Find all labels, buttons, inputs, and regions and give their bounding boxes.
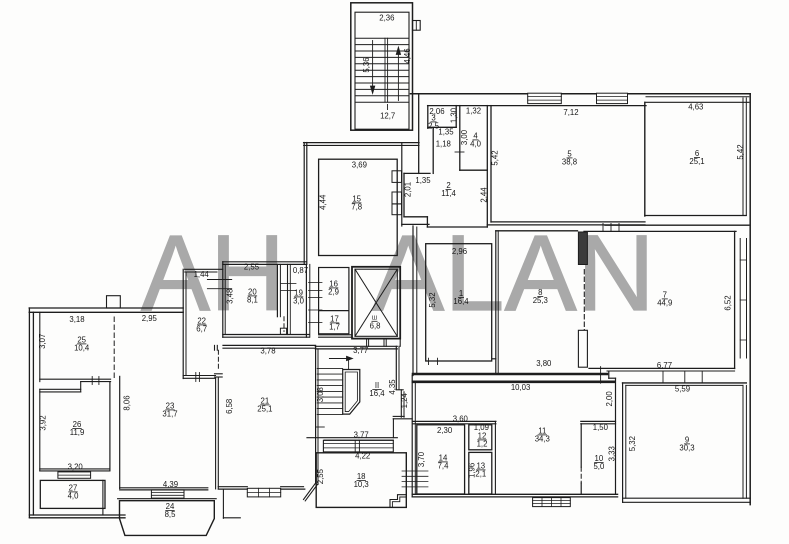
svg-text:5,36: 5,36 xyxy=(362,57,371,72)
svg-text:5,32: 5,32 xyxy=(428,292,437,307)
svg-text:3,70: 3,70 xyxy=(417,451,426,467)
svg-text:5,42: 5,42 xyxy=(490,150,499,165)
svg-text:4,39: 4,39 xyxy=(163,480,178,489)
svg-text:4,35: 4,35 xyxy=(388,379,397,395)
svg-text:25,1: 25,1 xyxy=(689,157,704,166)
svg-text:1,18: 1,18 xyxy=(436,139,451,148)
svg-text:4,0: 4,0 xyxy=(470,139,482,148)
svg-text:16,4: 16,4 xyxy=(453,297,469,306)
svg-text:2,55: 2,55 xyxy=(316,468,325,484)
svg-text:34,3: 34,3 xyxy=(535,434,550,443)
svg-text:1,44: 1,44 xyxy=(194,270,210,279)
svg-text:0,87: 0,87 xyxy=(293,266,308,275)
svg-text:4,63: 4,63 xyxy=(688,102,703,111)
svg-text:2,00: 2,00 xyxy=(605,391,614,407)
svg-text:8,5: 8,5 xyxy=(165,510,177,519)
svg-text:10,4: 10,4 xyxy=(74,343,90,352)
svg-text:4,44: 4,44 xyxy=(319,194,328,210)
svg-text:2,44: 2,44 xyxy=(479,187,488,203)
svg-text:6,52: 6,52 xyxy=(723,295,732,310)
svg-text:3,60: 3,60 xyxy=(453,414,469,423)
svg-text:7,12: 7,12 xyxy=(563,108,578,117)
svg-text:3,07: 3,07 xyxy=(38,334,47,349)
svg-text:6,77: 6,77 xyxy=(657,361,672,370)
svg-text:10,03: 10,03 xyxy=(511,383,531,392)
svg-text:5,59: 5,59 xyxy=(675,384,690,393)
svg-text:3,77: 3,77 xyxy=(353,346,368,355)
svg-text:1,7: 1,7 xyxy=(329,322,340,331)
svg-text:1,09: 1,09 xyxy=(474,423,489,432)
svg-text:25,3: 25,3 xyxy=(533,296,548,305)
svg-text:1,30: 1,30 xyxy=(449,107,458,123)
svg-text:ALAN: ALAN xyxy=(372,212,655,333)
svg-text:3,80: 3,80 xyxy=(536,359,552,368)
svg-text:10,3: 10,3 xyxy=(354,480,369,489)
svg-text:25,1: 25,1 xyxy=(257,404,272,413)
svg-text:44,9: 44,9 xyxy=(657,298,672,307)
svg-text:3,08: 3,08 xyxy=(316,387,325,402)
svg-text:7,4: 7,4 xyxy=(438,461,450,470)
svg-text:5,0: 5,0 xyxy=(593,462,605,471)
svg-text:8,1: 8,1 xyxy=(247,295,258,304)
svg-text:2,30: 2,30 xyxy=(437,426,453,435)
svg-text:4,0: 4,0 xyxy=(68,491,80,500)
svg-text:1,96: 1,96 xyxy=(468,463,477,478)
svg-text:3,48: 3,48 xyxy=(225,289,234,304)
svg-text:3,0: 3,0 xyxy=(293,296,305,305)
svg-text:3,00: 3,00 xyxy=(460,129,469,145)
svg-text:3,77: 3,77 xyxy=(354,430,369,439)
svg-text:1,35: 1,35 xyxy=(438,127,454,136)
svg-text:38,8: 38,8 xyxy=(562,157,577,166)
svg-text:31,7: 31,7 xyxy=(162,409,177,418)
svg-text:3,33: 3,33 xyxy=(607,446,616,461)
svg-text:3,69: 3,69 xyxy=(352,160,367,169)
svg-text:2,1: 2,1 xyxy=(475,469,486,478)
svg-text:3,20: 3,20 xyxy=(68,462,84,471)
svg-text:5,42: 5,42 xyxy=(736,144,745,159)
svg-text:2,9: 2,9 xyxy=(328,287,339,296)
svg-text:30,3: 30,3 xyxy=(679,443,694,452)
svg-text:6,7: 6,7 xyxy=(196,324,207,333)
svg-text:3,78: 3,78 xyxy=(260,347,275,356)
svg-text:6,8: 6,8 xyxy=(370,321,381,330)
svg-text:8,06: 8,06 xyxy=(123,395,132,410)
svg-text:1,32: 1,32 xyxy=(466,106,481,115)
svg-text:1,35: 1,35 xyxy=(415,176,431,185)
svg-text:12,7: 12,7 xyxy=(380,111,395,120)
svg-text:4,46: 4,46 xyxy=(403,48,412,63)
svg-text:2,01: 2,01 xyxy=(404,182,413,197)
svg-text:16,4: 16,4 xyxy=(369,389,385,398)
svg-text:6,58: 6,58 xyxy=(225,399,234,414)
svg-text:1,2: 1,2 xyxy=(477,439,488,448)
svg-text:11,4: 11,4 xyxy=(441,189,456,198)
svg-text:2,06: 2,06 xyxy=(429,107,444,116)
svg-text:2,36: 2,36 xyxy=(379,13,394,22)
svg-text:1,50: 1,50 xyxy=(593,423,609,432)
svg-text:1,24: 1,24 xyxy=(400,393,409,409)
svg-text:2,95: 2,95 xyxy=(142,314,158,323)
svg-text:3,18: 3,18 xyxy=(69,315,84,324)
svg-text:5,32: 5,32 xyxy=(628,436,637,451)
svg-text:2,55: 2,55 xyxy=(244,263,260,272)
svg-text:3,92: 3,92 xyxy=(39,415,48,430)
svg-text:2,96: 2,96 xyxy=(452,247,467,256)
svg-text:7,8: 7,8 xyxy=(351,202,362,211)
svg-text:4,22: 4,22 xyxy=(355,451,370,460)
svg-text:11,9: 11,9 xyxy=(70,428,85,437)
